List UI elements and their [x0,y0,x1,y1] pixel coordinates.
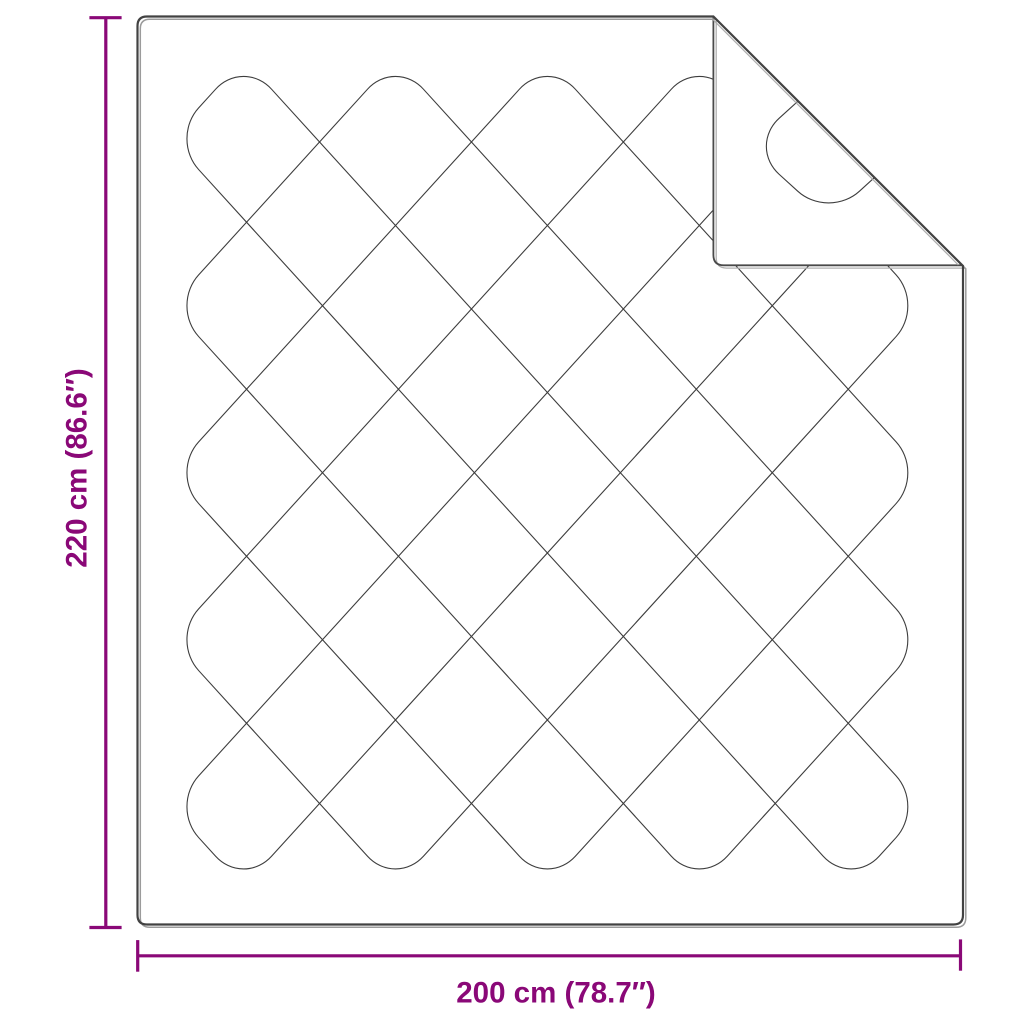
svg-text:200 cm (78.7″): 200 cm (78.7″) [456,977,655,1010]
svg-text:220 cm (86.6″): 220 cm (86.6″) [61,368,94,567]
